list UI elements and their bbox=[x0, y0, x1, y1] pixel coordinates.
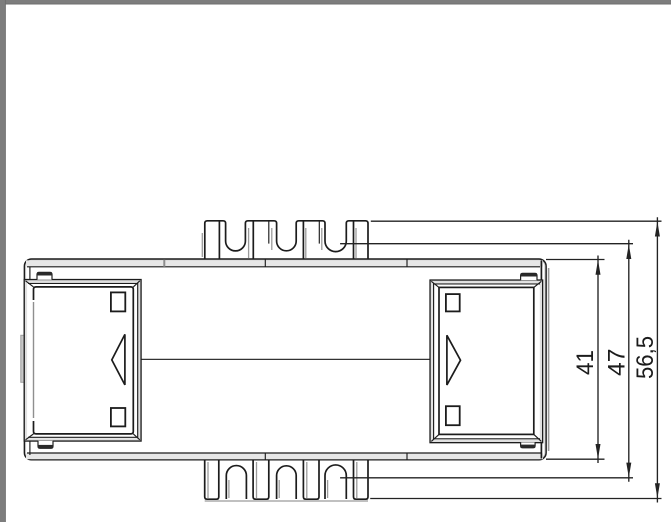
svg-text:56,5: 56,5 bbox=[632, 336, 659, 379]
svg-text:47: 47 bbox=[603, 349, 630, 376]
svg-text:41: 41 bbox=[572, 350, 599, 375]
